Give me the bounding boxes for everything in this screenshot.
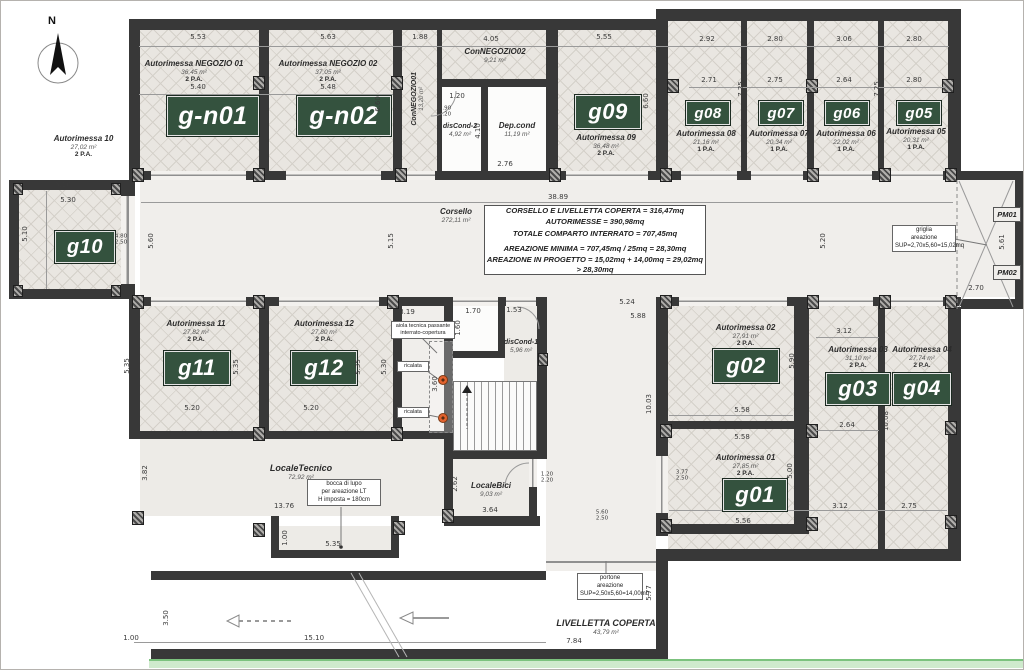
pillar [549, 168, 561, 182]
dim-label: 2.75 [767, 76, 783, 84]
dim-label: 5.10 [55, 181, 71, 189]
note-griglia-areazione: griglia areazione SUP=2,70x5,60=15,02mq [892, 225, 956, 252]
dim-label: 5.40 [190, 83, 206, 91]
pillar [945, 515, 957, 529]
dimension-line [46, 191, 47, 289]
dim-label: 4.80 2.50 [115, 234, 127, 247]
dim-label: 5.56 [735, 517, 751, 525]
wall [437, 79, 558, 87]
wall [961, 299, 1024, 309]
room-code-plate-g08: g08 [686, 101, 730, 125]
door-g12 [279, 297, 379, 306]
door-g11 [151, 297, 246, 306]
pillar [945, 421, 957, 435]
dim-label: 3.06 [836, 35, 852, 43]
room-code-plate-g01: g01 [723, 479, 787, 511]
summary-line: AREAZIONE MINIMA = 707,45mq / 25mq = 28,… [485, 244, 705, 253]
dim-label: 6.60 [374, 96, 382, 112]
pillar [879, 295, 891, 309]
dim-label: 7.25 [873, 81, 881, 97]
dim-label: 5.35 [123, 358, 131, 374]
pillar [253, 427, 265, 441]
room-label-g06: Autorimessa 06 22,02 m² 1 P.A. [811, 129, 881, 154]
pillar [807, 168, 819, 182]
dim-label: 7.84 [566, 637, 582, 645]
dim-label: 2.80 [906, 35, 922, 43]
door-g06 [818, 171, 872, 180]
wall [664, 421, 794, 429]
room-label-g10: Autorimessa 10 27,02 m² 2 P.A. [21, 134, 146, 159]
note-ricalata: ricalata [397, 407, 429, 418]
pillar [806, 517, 818, 531]
room-code-plate-g03: g03 [826, 373, 890, 405]
dim-label: 3.82 [141, 465, 149, 481]
room-code-plate-g12: g12 [291, 351, 357, 385]
dim-label: 6.60 [642, 93, 650, 109]
pillar [391, 427, 403, 441]
dim-label: 5.35 [325, 540, 341, 548]
dim-label: 5.15 [387, 233, 395, 249]
dim-label: 3.64 [482, 506, 498, 514]
room-label-livelletta: LIVELLETTA COPERTA 43,79 m² [541, 618, 671, 637]
room-code-plate-g04: g04 [893, 373, 951, 405]
dim-label: 5.58 [734, 406, 750, 414]
dim-label: 5.20 [184, 404, 200, 412]
dim-label: 3.12 [832, 502, 848, 510]
pillar [806, 79, 818, 93]
dim-label: 10.08 [882, 411, 890, 431]
door-connegozio01 [405, 171, 435, 180]
pillar [13, 183, 23, 195]
note-portone-areazione: portone areazione SUP=2,50x5,60=14,00mq [577, 573, 643, 600]
wall [537, 297, 547, 459]
room-code-plate-g11: g11 [164, 351, 230, 385]
pillar [253, 523, 265, 537]
dim-label: 38.89 [548, 193, 568, 201]
dim-label: 5.35 [232, 359, 240, 375]
wall [444, 516, 540, 526]
dim-label: 1.00 [123, 634, 139, 642]
pillar [667, 79, 679, 93]
room-label-g12: Autorimessa 12 27,80 m² 2 P.A. [259, 319, 389, 344]
dim-label: 5.53 [190, 33, 206, 41]
corsello-extension-fill [546, 297, 656, 571]
dim-label: 5.60 2.50 [596, 510, 608, 523]
dimension-line [669, 510, 947, 511]
room-label-depcond: Dep.cond 11,19 m² [491, 121, 543, 138]
pillar [13, 285, 23, 297]
dim-label: 2.70 [968, 284, 984, 292]
wall [444, 351, 504, 358]
dim-label: 2.80 [906, 76, 922, 84]
dimension-line [134, 642, 546, 643]
pillar [660, 295, 672, 309]
pillar [660, 519, 672, 533]
door-discond1 [506, 297, 536, 306]
ramp-break-line [351, 573, 399, 657]
pillar [806, 424, 818, 438]
dim-label: 4.10 [474, 123, 482, 139]
room-label-g11: Autorimessa 11 27,82 m² 2 P.A. [131, 319, 261, 344]
door-g09 [566, 171, 648, 180]
ramp-break-line [359, 573, 407, 657]
pillar [393, 521, 405, 535]
dim-label: 1.00 [281, 530, 289, 546]
door-gn02 [286, 171, 381, 180]
pillar [387, 295, 399, 309]
room-code-plate-gn01: g-n01 [167, 96, 259, 136]
dim-label: 5.20 [819, 233, 827, 249]
dim-label: 3.77 2.50 [676, 470, 688, 483]
summary-line: CORSELLO E LIVELLETTA COPERTA = 316,47mq [485, 206, 705, 215]
room-label-g09: Autorimessa 09 36,48 m² 2 P.A. [546, 133, 666, 158]
wall [656, 561, 668, 659]
dim-label: 1.88 [412, 33, 428, 41]
room-code-plate-g02: g02 [713, 349, 779, 383]
floor-plan-canvas: N Autorimessa NEGOZIO 01 36,45 m² 2 P.A.… [0, 0, 1024, 670]
dim-label: 5.55 [596, 33, 612, 41]
wall [9, 180, 19, 299]
room-label-g01: Autorimessa 01 27,85 m² 2 P.A. [693, 453, 798, 478]
dim-label: 2.76 [497, 160, 513, 168]
dim-label: 5.58 [734, 433, 750, 441]
dim-label: 2.80 [767, 35, 783, 43]
room-label-g04: Autorimessa 04 27,74 m² 2 P.A. [867, 345, 977, 370]
pillar [111, 183, 121, 195]
ricalata-dot [438, 375, 448, 385]
door-g03 [817, 297, 873, 306]
compass-north-label: N [48, 15, 56, 27]
room-label-connegozio02: ConNEGOZIO02 9,21 m² [449, 47, 541, 64]
dimension-line [669, 415, 793, 416]
room-code-plate-g06: g06 [825, 101, 869, 125]
dim-label: 5.30 [380, 359, 388, 375]
ricalata-dot [438, 413, 448, 423]
wall [529, 487, 537, 526]
stairs [453, 381, 537, 451]
dim-label: 3.60 [431, 376, 439, 392]
wall-ramp-north [151, 571, 546, 580]
dim-label: 7.25 [737, 81, 745, 97]
pm01-box: PM01 [993, 207, 1021, 222]
door-g04 [891, 297, 943, 306]
dim-label: 5.60 [147, 233, 155, 249]
dim-label: 2.62 [451, 476, 459, 492]
dim-label: 1.20 [449, 92, 465, 100]
dim-label: 5.88 [630, 312, 646, 320]
room-code-plate-g10: g10 [55, 231, 115, 263]
pillar [945, 295, 957, 309]
dim-label: 10.03 [645, 394, 653, 414]
wall [656, 549, 961, 561]
dim-label: 2.75 [901, 502, 917, 510]
pillar [253, 295, 265, 309]
room-code-plate-g05: g05 [897, 101, 941, 125]
dim-label: 5.35 [354, 359, 362, 375]
area-summary-box: CORSELLO E LIVELLETTA COPERTA = 316,47mq… [484, 205, 706, 275]
pillar [660, 424, 672, 438]
pillar [660, 168, 672, 182]
dim-label: 2.92 [699, 35, 715, 43]
summary-line: AREAZIONE IN PROGETTO = 15,02mq + 14,00m… [485, 255, 705, 274]
pm02-box: PM02 [993, 265, 1021, 280]
compass-circle [38, 43, 78, 83]
pillar [132, 295, 144, 309]
door-localebici [529, 459, 537, 487]
pillar [111, 285, 121, 297]
dim-label: 15.10 [304, 634, 324, 642]
room-code-plate-g07: g07 [759, 101, 803, 125]
wall [444, 451, 547, 459]
pillar [253, 168, 265, 182]
door-elevator [453, 297, 498, 306]
dim-label: 1.70 [465, 307, 481, 315]
wall [271, 550, 399, 558]
pillar [395, 168, 407, 182]
wall [664, 524, 794, 534]
door-g07 [751, 171, 803, 180]
portone-gate-line [546, 561, 656, 563]
dim-label: 5.20 [303, 404, 319, 412]
pillar [807, 295, 819, 309]
room-label-g08: Autorimessa 08 21,16 m² 1 P.A. [671, 129, 741, 154]
dim-label: 3.50 [162, 610, 170, 626]
dim-label: 5.24 [619, 298, 635, 306]
dim-label: 5.48 [320, 83, 336, 91]
dim-label: 5.30 [60, 196, 76, 204]
dimension-line [816, 337, 879, 338]
dimension-line [139, 94, 393, 95]
door-gn01 [151, 171, 246, 180]
dim-label: 5.63 [320, 33, 336, 41]
dim-label: 1.53 [506, 306, 522, 314]
arrow-head [227, 615, 239, 627]
note-ricalata: ricalata [397, 361, 429, 372]
wall [393, 19, 402, 171]
dim-label: 5.10 [21, 226, 29, 242]
dim-label: 2.71 [701, 76, 717, 84]
note-bocca-di-lupo: bocca di lupo per areazione LT H imposta… [307, 479, 381, 506]
summary-line: AUTORIMESSE = 390,98mq [485, 217, 705, 226]
compass-needle [50, 33, 66, 75]
dimension-line [141, 202, 953, 203]
wall [121, 180, 135, 196]
green-boundary-line [149, 659, 1024, 668]
room-label-gn01: Autorimessa NEGOZIO 01 36,45 m² 2 P.A. [129, 59, 259, 84]
note-aiola-tecnica: aiola tecnica passante interrato-copertu… [391, 321, 455, 339]
wall [259, 19, 269, 171]
room-label-g05: Autorimessa 05 20,31 m² 1 P.A. [881, 127, 951, 152]
pillar [879, 168, 891, 182]
door-g05 [888, 171, 943, 180]
dim-label: 13.76 [274, 502, 294, 510]
room-code-plate-g09: g09 [575, 95, 641, 129]
door-g08 [681, 171, 737, 180]
room-label-localebici: LocaleBici 9,03 m² [456, 481, 526, 498]
summary-line: TOTALE COMPARTO INTERRATO = 707,45mq [485, 229, 705, 238]
pillar [942, 79, 954, 93]
dim-label: 1.60 [454, 320, 462, 336]
room-label-gn02: Autorimessa NEGOZIO 02 37,05 m² 2 P.A. [263, 59, 393, 84]
dim-label: 3.19 [399, 308, 415, 316]
door-g01 [656, 456, 668, 513]
dim-label: 5.61 [998, 234, 1006, 250]
dim-label: 3.12 [836, 327, 852, 335]
wall [437, 19, 442, 173]
dimension-line [139, 46, 949, 47]
dim-label: 4.05 [483, 35, 499, 43]
pillar [945, 168, 957, 182]
dim-label: 0.90 2.20 [439, 106, 451, 119]
arrow-head [400, 612, 413, 624]
dimension-line [816, 430, 879, 431]
pillar [442, 509, 454, 523]
pillar [132, 511, 144, 525]
room-label-connegozio01: ConNEGOZIO01 13,20 m² [411, 69, 427, 129]
dim-label: 5.00 [786, 463, 794, 479]
pillar [132, 168, 144, 182]
wall [1015, 171, 1024, 309]
dim-label: 5.90 [788, 353, 796, 369]
dimension-line [689, 87, 947, 88]
room-label-discond1: disCond-1 5,96 m² [496, 339, 546, 355]
dim-label: 1.20 2.20 [541, 472, 553, 485]
dim-label: 2.64 [839, 421, 855, 429]
dim-label: 2.64 [836, 76, 852, 84]
room-label-g02: Autorimessa 02 27,91 m² 2 P.A. [693, 323, 798, 348]
room-label-g07: Autorimessa 07 20,34 m² 1 P.A. [744, 129, 814, 154]
wall-ramp-south [151, 649, 663, 659]
door-g02 [679, 297, 787, 306]
